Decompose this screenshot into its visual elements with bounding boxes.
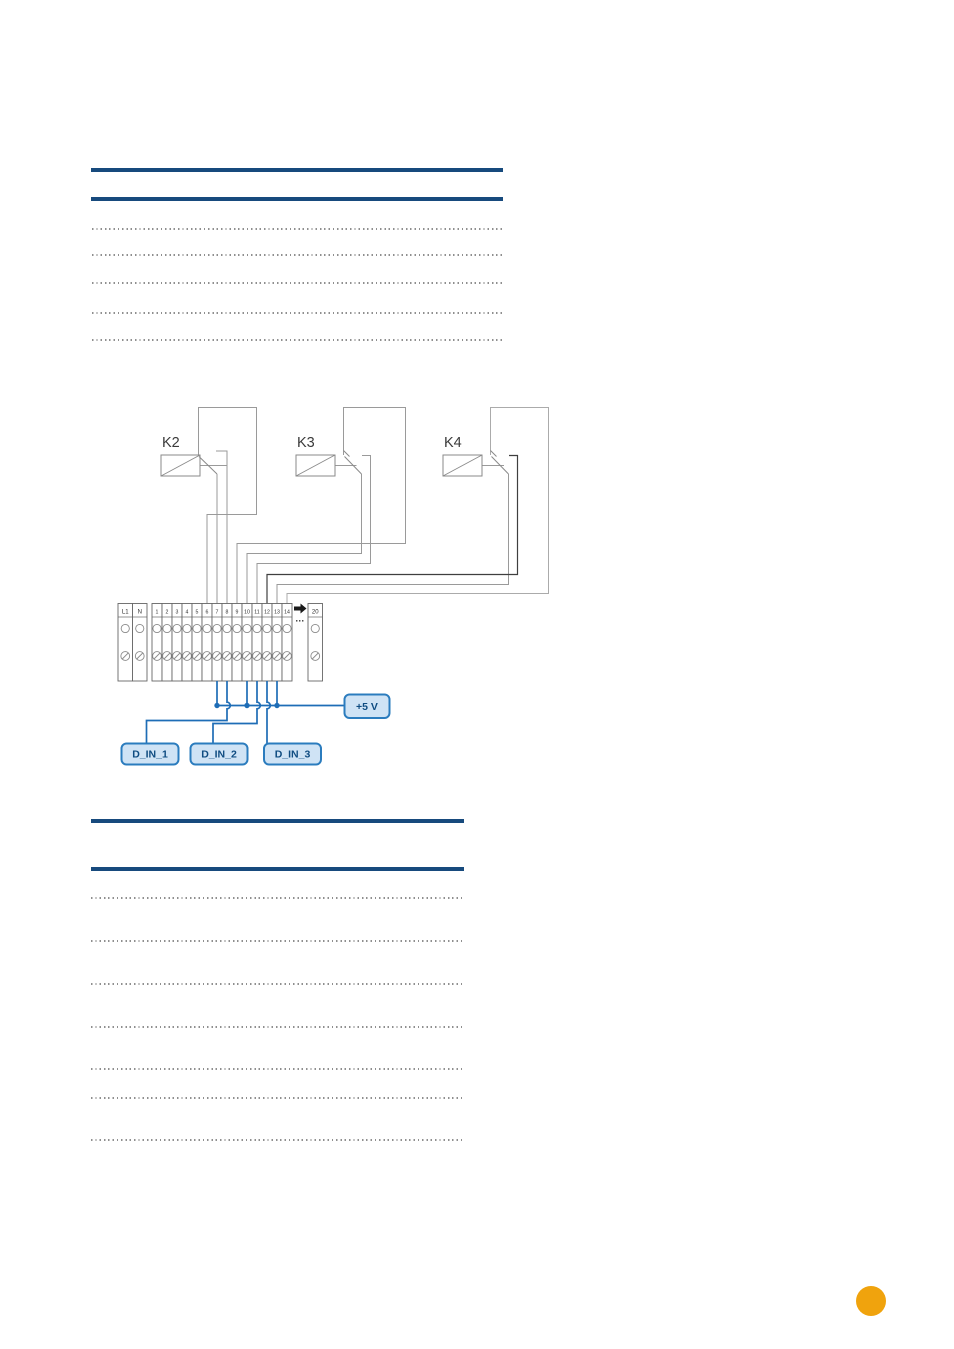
terminal-11-label: 11 (254, 610, 259, 616)
relay-k2-coil-diagonal (161, 455, 200, 476)
document-page: K2K3K4L1N1234567891011121314...20+5 VD_I… (0, 0, 954, 1349)
continuation-right-arrow-icon (294, 604, 307, 614)
relay-k4-aux-wire (267, 456, 518, 604)
terminal-4-label: 4 (186, 610, 189, 616)
bottom-rule-2 (91, 867, 464, 871)
relay-k4-contact-tick (491, 451, 497, 457)
leader-line (91, 983, 464, 985)
relay-k2-label: K2 (162, 435, 180, 451)
page-number-marker (856, 1286, 886, 1316)
bottom-rule-1 (91, 819, 464, 823)
junction-dot (274, 703, 279, 708)
leader-line (91, 940, 464, 942)
relay-k3-aux-wire (257, 456, 371, 604)
input-din3-label: D_IN_3 (275, 749, 311, 761)
relay-k4-lever-wire (277, 474, 509, 604)
leader-line (91, 897, 464, 899)
terminal-14-label: 14 (284, 610, 290, 616)
terminal-l1-label: L1 (122, 610, 129, 616)
input-din1-label: D_IN_1 (132, 749, 168, 761)
terminal-20-label: 20 (312, 610, 319, 616)
terminal-3-label: 3 (176, 610, 179, 616)
terminal-7-label: 7 (216, 610, 219, 616)
terminal-6-label: 6 (206, 610, 209, 616)
terminal-10-label: 10 (244, 610, 250, 616)
leader-line (91, 1026, 464, 1028)
terminal-2-label: 2 (166, 610, 169, 616)
terminal-8-label: 8 (226, 610, 229, 616)
blue-wire-terminal12-din3 (267, 681, 270, 744)
relay-k3-coil-diagonal (296, 455, 335, 476)
relay-wiring-diagram: K2K3K4L1N1234567891011121314...20+5 VD_I… (0, 0, 954, 1349)
relay-k3-label: K3 (297, 435, 315, 451)
terminal-12-label: 12 (264, 610, 270, 616)
continuation-ellipsis: ... (295, 614, 304, 624)
relay-k4-coil-diagonal (443, 455, 482, 476)
supply-5v-label: +5 V (356, 701, 378, 713)
junction-dot (244, 703, 249, 708)
terminal-5-label: 5 (196, 610, 199, 616)
terminal-1-label: 1 (156, 610, 159, 616)
terminal-9-label: 9 (236, 610, 239, 616)
relay-k2-aux-wire (216, 451, 227, 604)
terminal-13-label: 13 (274, 610, 280, 616)
leader-line (91, 1097, 464, 1099)
leader-line (91, 1068, 464, 1070)
leader-line (91, 1139, 464, 1141)
junction-dot (214, 703, 219, 708)
blue-wire-terminal11-din2 (213, 681, 260, 744)
terminal-n-label: N (138, 610, 142, 616)
relay-k3-contact-tick (344, 451, 350, 457)
input-din2-label: D_IN_2 (201, 749, 237, 761)
relay-k4-label: K4 (444, 435, 462, 451)
